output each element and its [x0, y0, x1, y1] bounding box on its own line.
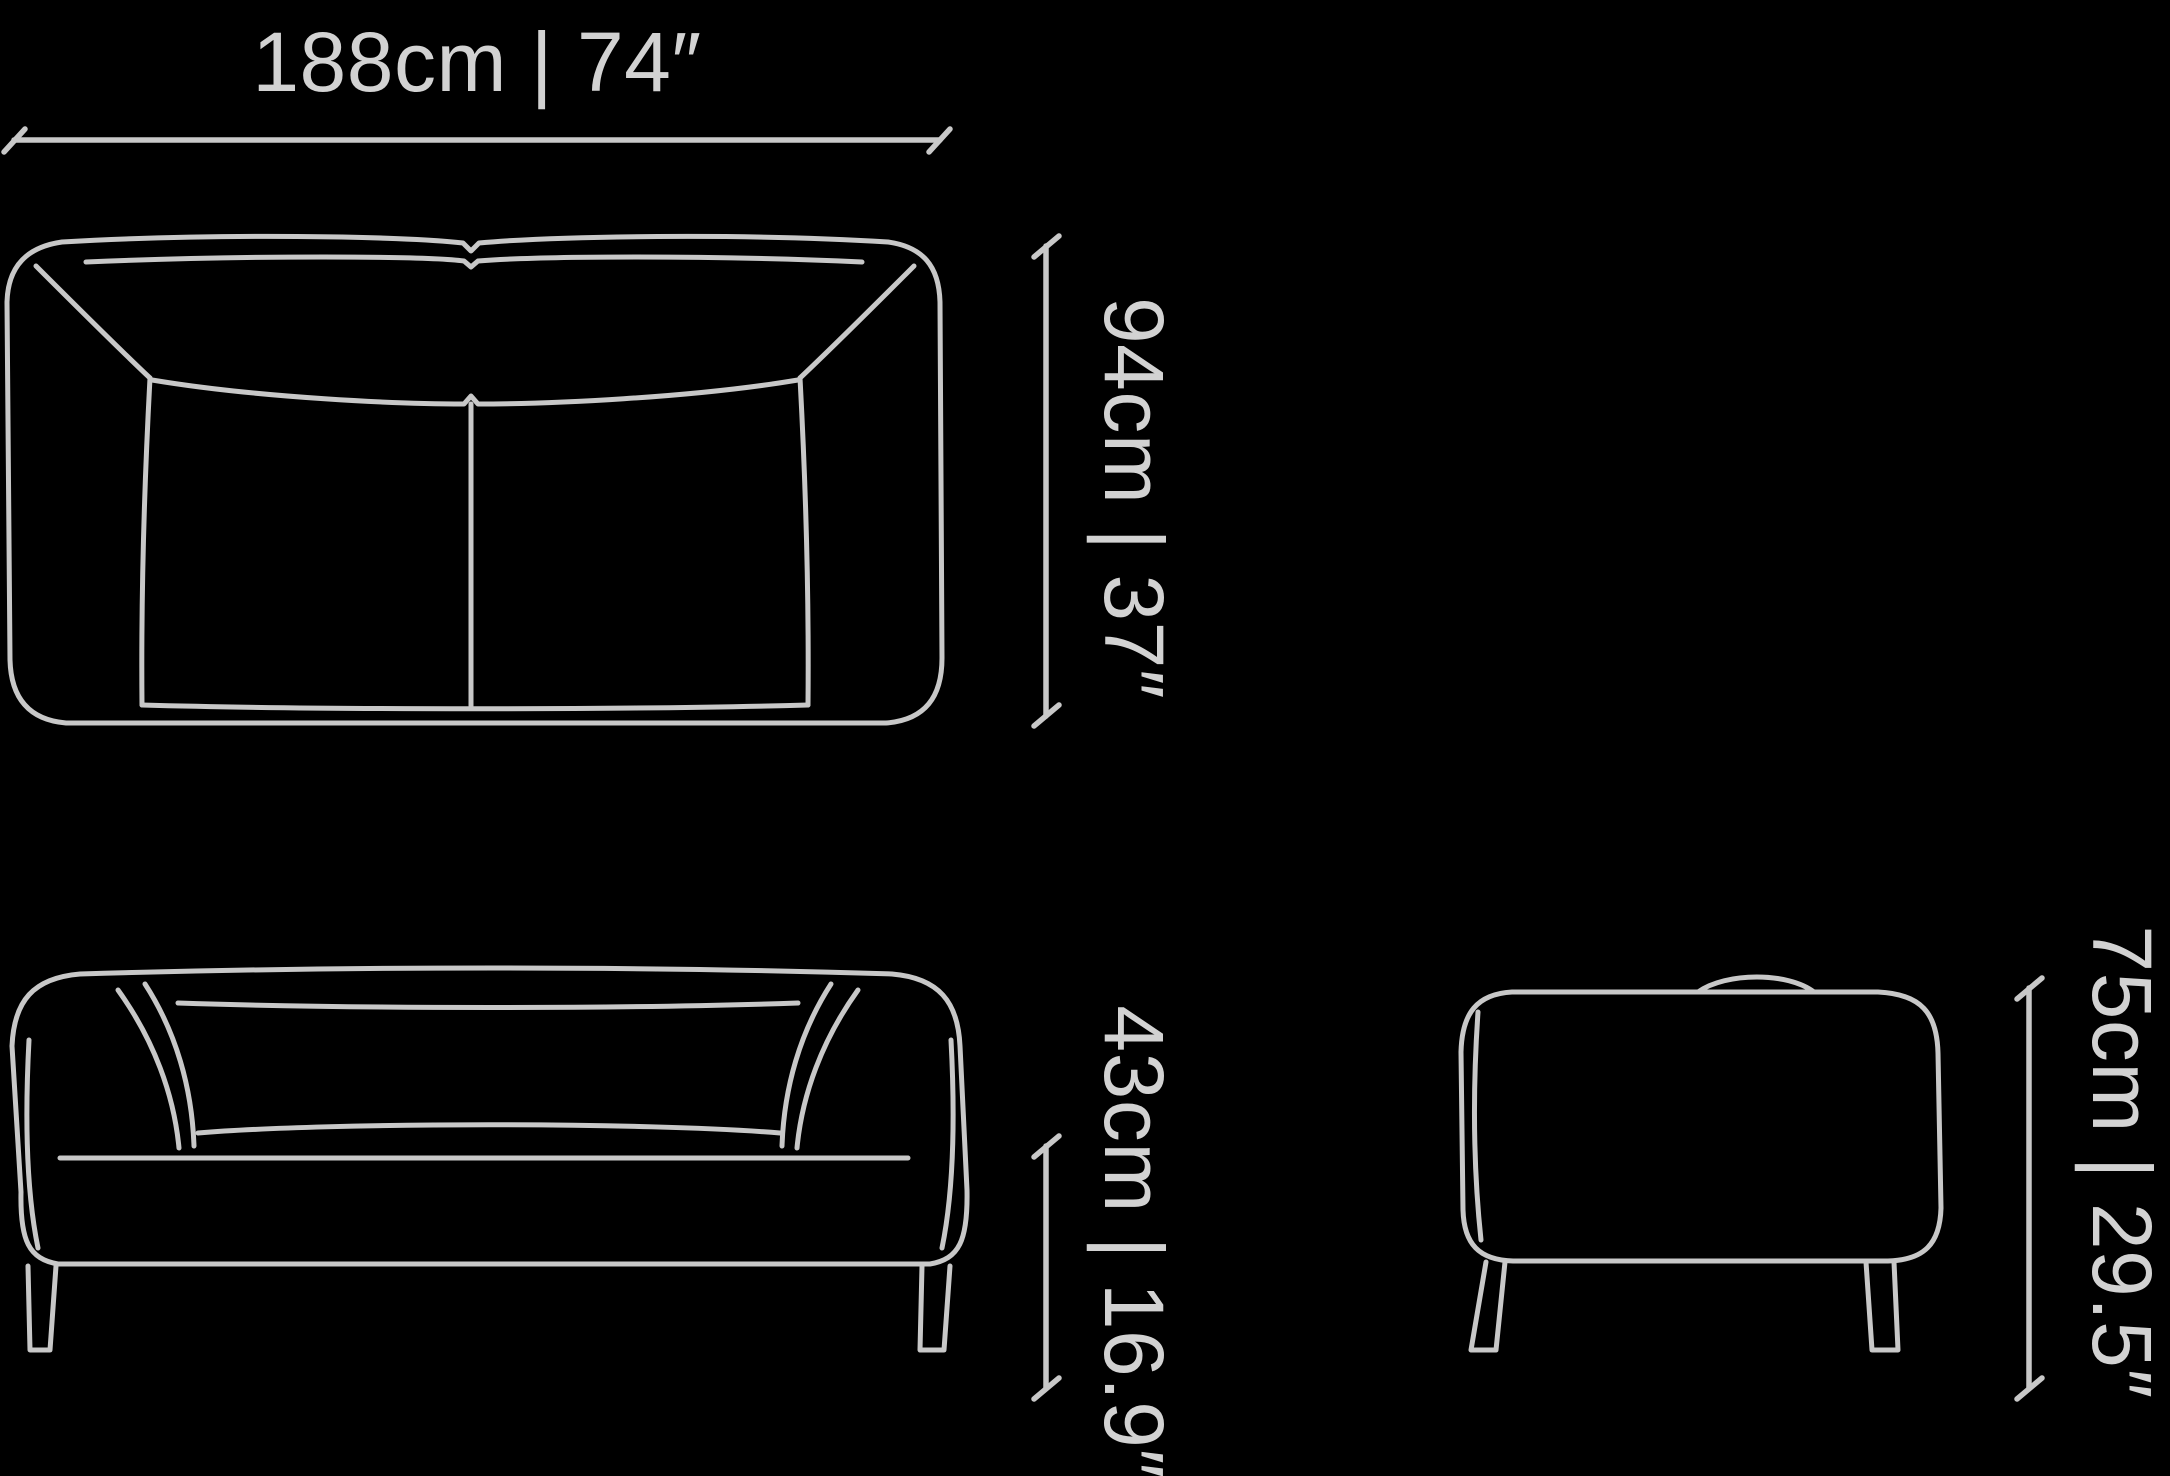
front-view-right-arm-seam [942, 1040, 953, 1248]
front-view-back-cushion-top [178, 1003, 798, 1008]
top-view-right-arm-fold [800, 266, 914, 378]
sofa-side-view-drawing [1461, 977, 1941, 1350]
sofa-top-view-drawing [7, 236, 942, 723]
height-dimension-label: 75cm | 29.5″ [2067, 812, 2170, 1476]
front-view-left-arm-seam [27, 1040, 38, 1248]
top-view-right-arm-inner [800, 378, 808, 705]
front-view-right-arm-curve-outer [797, 990, 858, 1148]
side-view-outline [1461, 992, 1941, 1261]
front-view-left-leg [28, 1266, 56, 1350]
front-view-left-arm-curve-outer [118, 990, 179, 1148]
front-view-cushion-bottom [198, 1125, 780, 1133]
side-view-right-leg [1866, 1262, 1898, 1350]
front-view-left-arm-curve-inner [145, 984, 194, 1146]
top-view-back-cushion-edge [152, 380, 798, 404]
width-dimension-label: 188cm | 74″ [27, 10, 927, 115]
depth-dimension-label: 94cm | 37″ [1079, 148, 1189, 848]
width-dimension-line [4, 129, 950, 152]
front-view-right-arm-curve-inner [782, 984, 831, 1146]
top-view-left-arm-inner [142, 378, 150, 705]
sofa-front-view-drawing [12, 968, 967, 1350]
front-view-outline [12, 968, 967, 1264]
side-view-back-seam [1475, 1012, 1481, 1240]
seat-height-dimension-label: 43cm | 16.9″ [1079, 892, 1189, 1476]
sofa-dimension-diagram: 188cm | 74″ 94cm | 37″ 43cm | 16.9″ 75cm… [0, 0, 2170, 1476]
side-view-left-leg [1471, 1262, 1505, 1350]
seat-height-dimension-line [1034, 1136, 1059, 1399]
top-view-front-inner-edge [142, 705, 808, 709]
top-view-left-arm-fold [36, 266, 150, 378]
height-dimension-line [2017, 978, 2042, 1399]
depth-dimension-line [1034, 236, 1059, 726]
front-view-right-leg [920, 1266, 950, 1350]
top-view-back-edge [86, 257, 862, 267]
